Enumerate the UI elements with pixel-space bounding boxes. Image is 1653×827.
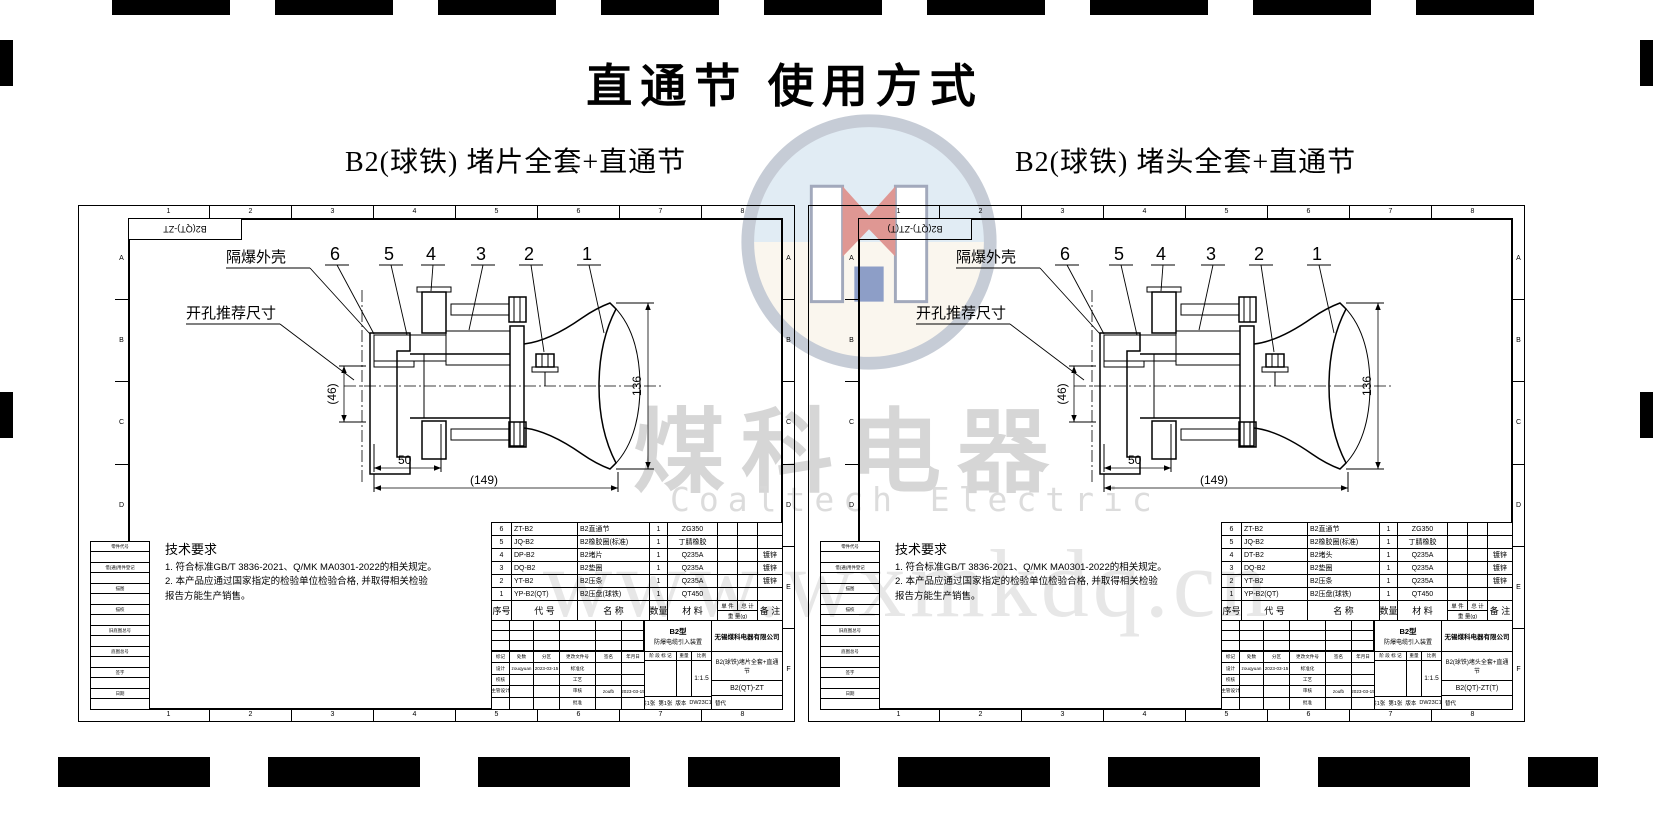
callout-5: 5: [1114, 244, 1124, 264]
bom-cell: Q235A: [668, 575, 718, 588]
drawing-sheet-left: 12345678 12345678 ABCDEF ABCDEF B2(QT)-Z…: [78, 205, 795, 722]
bom-cell: [718, 575, 738, 588]
tb-cell: 分区: [1264, 652, 1290, 663]
revision-grid-cell: [510, 631, 534, 641]
bom-cell: [1488, 523, 1512, 536]
sidebar-field-cell: [91, 552, 149, 562]
zone-number: 3: [1022, 709, 1104, 721]
version-value: DW23C15: [689, 700, 711, 706]
callout-6: 6: [330, 244, 340, 264]
revision-grid-cell: [560, 631, 596, 641]
tech-line: 1. 符合标准GB/T 3836-2021、Q/MK MA0301-2022的相…: [895, 561, 1225, 575]
bom-cell: DP-B2: [512, 549, 578, 562]
tb-cell: [596, 698, 622, 709]
tech-title: 技术要求: [165, 539, 495, 558]
title-block-company: 无锡煤科电器有限公司 B2(球铁)堵片全套+直通节 B2(QT)-ZT 替代: [712, 621, 782, 709]
sidebar-field-cell: [91, 594, 149, 604]
bom-cell: [1448, 575, 1468, 588]
sidebar-field-cell: [821, 594, 879, 604]
bom-header-qty: 数量: [650, 601, 668, 621]
bom-row: 3DQ-B2B2垫圈1Q235A镀锌: [1222, 562, 1512, 575]
zone-number: 7: [1350, 709, 1432, 721]
zone-letter: A: [115, 218, 128, 300]
tb-cell: 年月日: [1352, 652, 1374, 663]
product-desc: 防爆电缆引入装置: [654, 637, 702, 646]
product-type: B2型: [1399, 626, 1416, 637]
bom-cell: [1468, 588, 1488, 601]
sidebar-field-cell: [91, 573, 149, 583]
page-title: 直通节 使用方式: [0, 50, 1570, 116]
title-block-signatures: 标记 处数 分区 更改文件号 签名 年月日 设计 zouqyuan 2023-0…: [1222, 621, 1375, 709]
zone-letter: B: [783, 300, 794, 382]
version-label: 版本: [1405, 699, 1416, 707]
zone-letter: C: [845, 382, 858, 464]
drawing-title: B2(球铁)堵头全套+直通节: [1442, 652, 1512, 681]
tb-cell: 主管设计: [1222, 686, 1240, 697]
revision-grid-cell: [492, 631, 510, 641]
edge-dash-right: [1640, 40, 1653, 86]
svg-text:(46): (46): [1055, 383, 1069, 404]
title-block-product: B2型 防爆电缆引入装置 阶 段 标 记 重量 比例 1:1.5 共1张: [645, 621, 712, 709]
bom-cell: [1448, 549, 1468, 562]
tb-cell: [534, 686, 560, 697]
tb-cell: 批准: [1290, 698, 1326, 709]
left-panel-subtitle: B2(球铁) 堵片全套+直通节: [345, 140, 686, 180]
tech-line: 报告方能生产销售。: [895, 590, 1225, 604]
zone-number: 3: [292, 709, 374, 721]
bom-cell: [1448, 523, 1468, 536]
blanking-part: [422, 292, 446, 333]
bom-cell: B2堵片: [578, 549, 650, 562]
tb-cell: 年月日: [622, 652, 644, 663]
bom-header: 序号 代 号 名 称 数量 材 料 单 件 总 计 重 量(g) 备 注: [492, 601, 782, 621]
bom-cell: YT-B2: [1242, 575, 1308, 588]
bom-cell: 1: [650, 588, 668, 601]
bom-cell: B2堵头: [1308, 549, 1380, 562]
bom-cell: 1: [1380, 562, 1398, 575]
sheet-count: 共1张: [1375, 699, 1385, 707]
sheet-info: 共1张 第1张 版本 DW23C15: [645, 697, 711, 709]
callout-3: 3: [476, 244, 486, 264]
tech-line: 1. 符合标准GB/T 3836-2021、Q/MK MA0301-2022的相…: [165, 561, 495, 575]
scale-label: 比例: [692, 652, 711, 661]
revision-grid-cell: [1222, 631, 1240, 641]
drawing-code: B2(QT)-ZT(T): [1442, 681, 1512, 696]
tb-cell: 2023-03-15: [534, 663, 560, 674]
sidebar-field-cell: [821, 657, 879, 667]
revision-grid-cell: [1290, 621, 1326, 631]
bom-row: 5JQ-B2B2橡胶圈(标准)1丁腈橡胶: [1222, 536, 1512, 549]
revision-grid-cell: [596, 631, 622, 641]
zone-letter: B: [1513, 300, 1524, 382]
bom-row: 2YT-B2B2压条1Q235A镀锌: [492, 575, 782, 588]
gland-body: [446, 331, 510, 365]
margin-fields: 零件代号借(通)用件登记描图描校旧底图总号底图总号签字日期: [820, 541, 880, 710]
title-block-signatures: 标记 处数 分区 更改文件号 签名 年月日 设计 zouqyuan 2023-0…: [492, 621, 645, 709]
tb-cell: 2023-03-15: [1352, 686, 1374, 697]
revision-grid-cell: [1326, 631, 1352, 641]
svg-text:(149): (149): [1200, 473, 1228, 487]
version-label: 版本: [675, 699, 686, 707]
tb-cell: 工艺: [1290, 675, 1326, 686]
bom-header-remark: 备 注: [1488, 601, 1512, 621]
bom-cell: QT450: [1398, 588, 1448, 601]
company-name: 无锡煤科电器有限公司: [1442, 621, 1512, 652]
tech-title: 技术要求: [895, 539, 1225, 558]
bom-header-remark: 备 注: [758, 601, 782, 621]
zone-letter: D: [845, 465, 858, 547]
bom-cell: [1468, 536, 1488, 549]
sidebar-field-label: 描图: [91, 583, 149, 594]
revision-grid-cell: [1352, 621, 1374, 631]
tb-cell: 校核: [1222, 675, 1240, 686]
zone-letter: D: [115, 465, 128, 547]
bom-header-material: 材 料: [668, 601, 718, 621]
bom-cell: B2直通节: [1308, 523, 1380, 536]
tb-cell: 标记: [1222, 652, 1240, 663]
bom-cell: 镀锌: [1488, 562, 1512, 575]
bom-cell: 2: [492, 575, 512, 588]
bom-cell: B2压盘(球铁): [578, 588, 650, 601]
bom-cell: QT450: [668, 588, 718, 601]
revision-grid-cell: [622, 621, 644, 631]
callout-4: 4: [1156, 244, 1166, 264]
bom-cell: [1468, 523, 1488, 536]
tb-cell: zoufb: [1326, 686, 1352, 697]
zone-number: 7: [1350, 206, 1432, 218]
bom-cell: [1448, 536, 1468, 549]
scale-value: 1:1.5: [692, 661, 711, 697]
bom-cell: 2: [1222, 575, 1242, 588]
replace-label: 替代: [712, 696, 782, 709]
zone-number: 6: [1268, 206, 1350, 218]
tb-cell: 校核: [492, 675, 510, 686]
tb-cell: [1240, 686, 1264, 697]
weight-value: [677, 661, 692, 697]
zone-col-right: ABCDEF: [783, 218, 794, 710]
shell-label: 隔爆外壳: [956, 249, 1016, 266]
revision-grid-cell: [1290, 631, 1326, 641]
tb-cell: [1264, 698, 1290, 709]
sidebar-field-label: 底图总号: [821, 646, 879, 657]
tb-cell: [1240, 675, 1264, 686]
bom-cell: Q235A: [1398, 575, 1448, 588]
bom-cell: ZG350: [668, 523, 718, 536]
bom-header-name: 名 称: [1308, 601, 1380, 621]
bom-cell: 1: [650, 549, 668, 562]
bom-cell: [758, 536, 782, 549]
zone-letter: F: [1513, 629, 1524, 710]
dim-46: (46): [325, 383, 339, 404]
bom-cell: 1: [1222, 588, 1242, 601]
revision-grid-cell: [534, 621, 560, 631]
title-block-product: B2型 防爆电缆引入装置 阶 段 标 记 重量 比例 1:1.5 共1张: [1375, 621, 1442, 709]
revision-grid-cell: [1290, 641, 1326, 651]
bom-header-unit: 单 件: [1448, 601, 1468, 610]
zone-number: 2: [210, 709, 292, 721]
callout-1: 1: [1312, 244, 1322, 264]
zone-letter: D: [1513, 465, 1524, 547]
bom-cell: [738, 575, 758, 588]
tb-cell: [622, 663, 644, 674]
bom-cell: [718, 536, 738, 549]
bom-header-total: 总 计: [1468, 601, 1487, 610]
bom-row: 4DP-B2B2堵片1Q235A镀锌: [492, 549, 782, 562]
press-bar: [536, 354, 554, 367]
sidebar-field-cell: [821, 615, 879, 625]
bom-cell: 1: [650, 575, 668, 588]
zone-letter: A: [845, 218, 858, 300]
tb-cell: [534, 675, 560, 686]
bom-cell: DQ-B2: [512, 562, 578, 575]
tb-cell: [1352, 675, 1374, 686]
zone-number: 7: [620, 709, 702, 721]
tb-cell: 处数: [510, 652, 534, 663]
bom-cell: [738, 536, 758, 549]
replace-label: 替代: [1442, 696, 1512, 709]
stage-label: 阶 段 标 记: [645, 652, 677, 661]
bom-cell: [1448, 588, 1468, 601]
sidebar-field-label: 借(通)用件登记: [91, 562, 149, 573]
bom-cell: 镀锌: [758, 549, 782, 562]
bom-cell: B2橡胶圈(标准): [578, 536, 650, 549]
bom-cell: [718, 588, 738, 601]
revision-grid-cell: [534, 631, 560, 641]
bom-row: 3DQ-B2B2垫圈1Q235A镀锌: [492, 562, 782, 575]
weight-value: [1407, 661, 1422, 697]
tb-cell: zoufb: [596, 686, 622, 697]
zone-number: 2: [940, 709, 1022, 721]
tb-cell: [1264, 675, 1290, 686]
bom-cell: Q235A: [668, 562, 718, 575]
tech-lines: 1. 符合标准GB/T 3836-2021、Q/MK MA0301-2022的相…: [165, 561, 495, 604]
bom-header-weight-label: 重 量(g): [718, 611, 757, 620]
right-panel-subtitle: B2(球铁) 堵头全套+直通节: [1015, 140, 1356, 180]
drawing-code: B2(QT)-ZT: [712, 681, 782, 696]
revision-grid-cell: [1264, 631, 1290, 641]
bom-title-block: 6ZT-B2B2直通节1ZG3505JQ-B2B2橡胶圈(标准)1丁腈橡胶4DP…: [491, 522, 783, 710]
sidebar-field-cell: [821, 678, 879, 688]
corner-drawing-code: B2(QT)-ZT(T): [858, 218, 972, 240]
bom-header-no: 序号: [492, 601, 512, 621]
revision-grid-cell: [1240, 641, 1264, 651]
zone-letter: C: [783, 382, 794, 464]
callout-6: 6: [1060, 244, 1070, 264]
bom-header-qty: 数量: [1380, 601, 1398, 621]
bom-cell: YP-B2(QT): [1242, 588, 1308, 601]
bom-header-total: 总 计: [738, 601, 757, 610]
scale-value: 1:1.5: [1422, 661, 1441, 697]
tech-line: 2. 本产品应通过国家指定的检验单位检验合格, 并取得相关检验: [895, 575, 1225, 589]
sidebar-field-label: 签字: [91, 667, 149, 678]
zone-number: 5: [456, 709, 538, 721]
callout-1: 1: [582, 244, 592, 264]
tb-cell: [622, 698, 644, 709]
zone-number: 4: [374, 206, 456, 218]
bottom-bolt-shaft: [451, 429, 509, 440]
revision-grid-cell: [1264, 621, 1290, 631]
tb-cell: 2023-03-15: [1264, 663, 1290, 674]
zone-number: 2: [940, 206, 1022, 218]
tb-cell: [596, 663, 622, 674]
zone-number: 1: [858, 709, 940, 721]
zone-number: 8: [1432, 206, 1513, 218]
svg-text:136: 136: [1360, 376, 1374, 396]
tb-cell: 签名: [596, 652, 622, 663]
zone-letter: E: [783, 547, 794, 629]
tb-cell: 工艺: [560, 675, 596, 686]
title-block: 标记 处数 分区 更改文件号 签名 年月日 设计 zouqyuan 2023-0…: [492, 621, 782, 709]
title-block-company: 无锡煤科电器有限公司 B2(球铁)堵头全套+直通节 B2(QT)-ZT(T) 替…: [1442, 621, 1512, 709]
bom-cell: JQ-B2: [1242, 536, 1308, 549]
bom-cell: B2橡胶圈(标准): [1308, 536, 1380, 549]
zone-letter: C: [115, 382, 128, 464]
revision-grid-cell: [1352, 641, 1374, 651]
tb-cell: 主管设计: [492, 686, 510, 697]
zone-number: 1: [128, 206, 210, 218]
zone-col-right: ABCDEF: [1513, 218, 1524, 710]
sidebar-field-label: 描校: [821, 604, 879, 615]
zone-number: 4: [374, 709, 456, 721]
edge-dashes-bottom: [58, 757, 1598, 787]
zone-letter: C: [1513, 382, 1524, 464]
sidebar-field-label: 借(通)用件登记: [821, 562, 879, 573]
svg-text:50: 50: [1128, 453, 1142, 467]
shell-label: 隔爆外壳: [226, 249, 286, 266]
bom-table: 6ZT-B2B2直通节1ZG3505JQ-B2B2橡胶圈(标准)1丁腈橡胶4DP…: [492, 523, 782, 601]
sidebar-field-cell: [91, 657, 149, 667]
revision-grid-cell: [1264, 641, 1290, 651]
bom-cell: 6: [492, 523, 512, 536]
tb-cell: [622, 675, 644, 686]
zone-number: 5: [1186, 709, 1268, 721]
margin-fields: 零件代号借(通)用件登记描图描校旧底图总号底图总号签字日期: [90, 541, 150, 710]
top-bolt-head: [509, 297, 526, 322]
revision-grid-cell: [560, 621, 596, 631]
sidebar-field-label: 日期: [821, 688, 879, 699]
zone-number: 5: [1186, 206, 1268, 218]
stage-label: 阶 段 标 记: [1375, 652, 1407, 661]
bom-header-unit: 单 件: [718, 601, 738, 610]
sidebar-field-label: 签字: [821, 667, 879, 678]
bom-cell: 镀锌: [758, 562, 782, 575]
zone-row-top: 12345678: [128, 206, 783, 218]
bom-row: 1YP-B2(QT)B2压盘(球铁)1QT450: [1222, 588, 1512, 601]
bom-row: 4DT-B2B2堵头1Q235A镀锌: [1222, 549, 1512, 562]
sidebar-field-cell: [91, 699, 149, 709]
stage-boxes: [645, 661, 677, 697]
revision-grid-cell: [622, 641, 644, 651]
revision-grid-cell: [492, 641, 510, 651]
product-desc: 防爆电缆引入装置: [1384, 637, 1432, 646]
bom-cell: YT-B2: [512, 575, 578, 588]
revision-grid: [492, 621, 644, 652]
dim-149: (149): [470, 473, 498, 487]
tb-cell: [510, 675, 534, 686]
sidebar-field-label: 描图: [821, 583, 879, 594]
sidebar-field-label: 零件代号: [821, 541, 879, 552]
tb-cell: zouqyuan: [1240, 663, 1264, 674]
tb-cell: [510, 698, 534, 709]
tb-cell: 分区: [534, 652, 560, 663]
bom-cell: 4: [1222, 549, 1242, 562]
bom-cell: 1: [1380, 523, 1398, 536]
bom-header-no: 序号: [1222, 601, 1242, 621]
revision-grid-cell: [622, 631, 644, 641]
tb-cell: 标记: [492, 652, 510, 663]
tb-cell: [1352, 698, 1374, 709]
sidebar-field-cell: [821, 699, 879, 709]
dim-50: 50: [398, 453, 412, 467]
zone-letter: A: [783, 218, 794, 300]
edge-dashes-top: [112, 0, 1554, 15]
stage-boxes: [1375, 661, 1407, 697]
bom-cell: Q235A: [668, 549, 718, 562]
edge-dash-right: [1640, 392, 1653, 438]
tb-cell: [1264, 686, 1290, 697]
bom-cell: [1468, 575, 1488, 588]
zone-letter: B: [845, 300, 858, 382]
drawing-title: B2(球铁)堵片全套+直通节: [712, 652, 782, 681]
revision-grid-cell: [1326, 641, 1352, 651]
zone-row-bottom: 12345678: [858, 709, 1513, 721]
bom-cell: ZT-B2: [512, 523, 578, 536]
revision-grid-cell: [510, 641, 534, 651]
bom-cell: Q235A: [1398, 549, 1448, 562]
zone-number: 4: [1104, 206, 1186, 218]
bom-cell: 镀锌: [1488, 575, 1512, 588]
zone-letter: A: [1513, 218, 1524, 300]
tb-cell: 处数: [1240, 652, 1264, 663]
zone-letter: F: [783, 629, 794, 710]
bom-cell: 1: [492, 588, 512, 601]
zone-number: 4: [1104, 709, 1186, 721]
bom-cell: 5: [492, 536, 512, 549]
zone-letter: B: [115, 300, 128, 382]
bom-cell: 1: [650, 562, 668, 575]
tech-lines: 1. 符合标准GB/T 3836-2021、Q/MK MA0301-2022的相…: [895, 561, 1225, 604]
bom-cell: [718, 549, 738, 562]
bom-cell: B2压条: [1308, 575, 1380, 588]
revision-grid-cell: [1326, 621, 1352, 631]
sidebar-field-cell: [91, 636, 149, 646]
sidebar-field-label: 旧底图总号: [91, 625, 149, 636]
bom-cell: [738, 588, 758, 601]
zone-row-top: 12345678: [858, 206, 1513, 218]
bom-cell: 1: [1380, 575, 1398, 588]
zone-number: 2: [210, 206, 292, 218]
bom-title-block: 6ZT-B2B2直通节1ZG3505JQ-B2B2橡胶圈(标准)1丁腈橡胶4DT…: [1221, 522, 1513, 710]
bom-header: 序号 代 号 名 称 数量 材 料 单 件 总 计 重 量(g) 备 注: [1222, 601, 1512, 621]
sheet-number: 第1张: [658, 699, 672, 707]
zone-letter: D: [783, 465, 794, 547]
bom-header-weight: 单 件 总 计 重 量(g): [718, 601, 758, 621]
tb-cell: 设计: [1222, 663, 1240, 674]
assembly-figure: 隔爆外壳 开孔推荐尺寸 6 5 4 3 2 1: [184, 236, 684, 506]
bom-cell: ZG350: [1398, 523, 1448, 536]
version-value: DW23C15: [1419, 700, 1441, 706]
product-type: B2型: [669, 626, 686, 637]
zone-number: 7: [620, 206, 702, 218]
sheet-info: 共1张 第1张 版本 DW23C15: [1375, 697, 1441, 709]
bom-cell: [1468, 549, 1488, 562]
tb-cell: [534, 698, 560, 709]
bom-cell: 丁腈橡胶: [668, 536, 718, 549]
bom-cell: 1: [1380, 549, 1398, 562]
tech-requirements: 技术要求 1. 符合标准GB/T 3836-2021、Q/MK MA0301-2…: [895, 539, 1225, 604]
bom-cell: [758, 588, 782, 601]
bom-cell: B2垫圈: [578, 562, 650, 575]
